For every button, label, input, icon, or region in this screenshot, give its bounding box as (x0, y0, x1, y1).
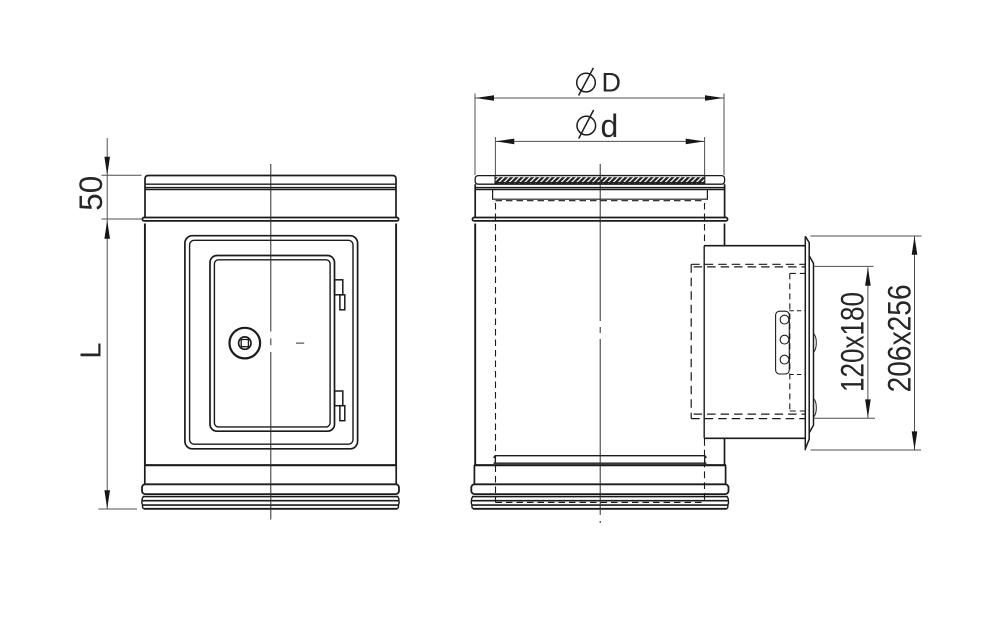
svg-text:50: 50 (73, 176, 109, 211)
svg-text:L: L (76, 343, 108, 359)
svg-text:D: D (602, 68, 622, 98)
svg-text:d: d (601, 108, 619, 144)
svg-text:206x256: 206x256 (881, 284, 917, 392)
svg-text:120x180: 120x180 (835, 292, 871, 392)
